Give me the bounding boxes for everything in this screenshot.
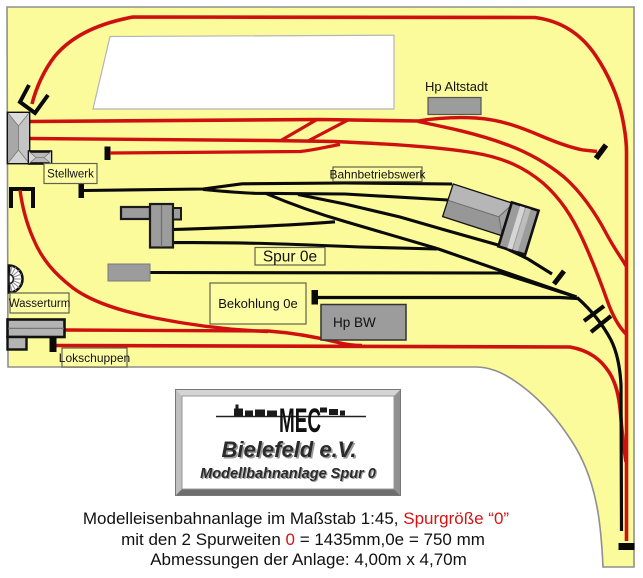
- svg-text:Bielefeld e.V.: Bielefeld e.V.: [222, 437, 357, 462]
- svg-text:Hp Altstadt: Hp Altstadt: [425, 79, 488, 94]
- svg-text:Stellwerk: Stellwerk: [47, 169, 94, 181]
- svg-text:MEC: MEC: [279, 402, 321, 440]
- svg-text:Bahnbetriebswerk: Bahnbetriebswerk: [329, 168, 426, 182]
- svg-text:Hp BW: Hp BW: [333, 315, 376, 330]
- svg-text:Spur 0e: Spur 0e: [263, 249, 317, 266]
- svg-text:Wasserturm: Wasserturm: [9, 298, 71, 310]
- svg-text:Bekohlung 0e: Bekohlung 0e: [218, 296, 298, 311]
- svg-text:Modellbahnanlage Spur 0: Modellbahnanlage Spur 0: [200, 466, 376, 482]
- svg-text:Lokschuppen: Lokschuppen: [59, 351, 130, 365]
